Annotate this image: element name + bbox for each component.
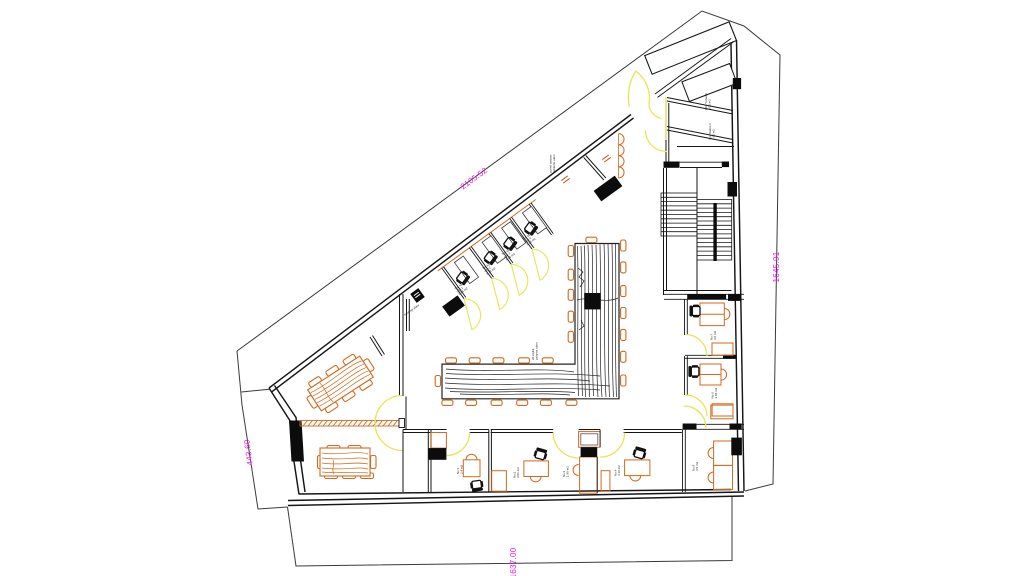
svg-text:4.19 m2: 4.19 m2 bbox=[617, 465, 621, 476]
svg-text:1645.91: 1645.91 bbox=[772, 251, 781, 282]
svg-text:3.0 m2: 3.0 m2 bbox=[713, 330, 717, 340]
svg-text:3.01 m2: 3.01 m2 bbox=[516, 467, 520, 478]
svg-text:4.5 m2: 4.5 m2 bbox=[695, 461, 699, 471]
svg-text:2.66 m2: 2.66 m2 bbox=[712, 129, 716, 140]
svg-text:bekleme alanı: bekleme alanı bbox=[552, 154, 556, 173]
svg-text:4.05 m2: 4.05 m2 bbox=[708, 99, 712, 110]
svg-text:2.4 m2: 2.4 m2 bbox=[460, 464, 464, 474]
svg-text:çalışma alanı: çalışma alanı bbox=[535, 342, 539, 360]
svg-text:1.96 m2: 1.96 m2 bbox=[566, 466, 570, 477]
svg-text:1637.00: 1637.00 bbox=[509, 547, 518, 576]
svg-text:3.06 m2: 3.06 m2 bbox=[714, 387, 718, 398]
